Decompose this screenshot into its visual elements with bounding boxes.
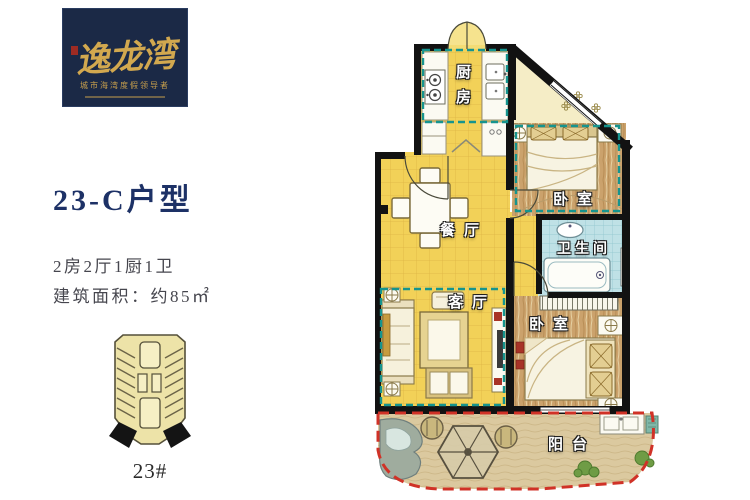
bed-bottom-icon xyxy=(525,338,615,400)
kitchen-counter-left xyxy=(422,52,448,120)
kitchen-counter-right xyxy=(482,52,508,120)
fridge-icon xyxy=(422,122,446,154)
coffee-table-icon xyxy=(420,312,468,368)
throw-blanket xyxy=(383,314,390,356)
room-label-kitchen: 厨房 xyxy=(452,64,473,114)
loveseat-icon xyxy=(426,368,472,398)
kitchen-cabinet-icon xyxy=(482,122,508,156)
room-label-living: 客厅 xyxy=(432,291,512,312)
balcony-sink-icon xyxy=(600,414,658,434)
bathroom-sink-icon xyxy=(557,223,583,238)
page: 逸龙湾 城市海湾度假领导者 23-C户型 2房2厅1厨1卫 建筑面积：约85㎡ … xyxy=(0,0,750,500)
room-label-bedroom-bottom: 卧室 xyxy=(513,313,593,334)
room-label-balcony: 阳台 xyxy=(532,433,612,454)
bathtub-icon xyxy=(544,258,610,292)
room-label-dining: 餐厅 xyxy=(424,219,504,240)
balcony-area xyxy=(378,413,658,489)
room-label-bedroom-top: 卧室 xyxy=(537,188,617,209)
sofa-icon xyxy=(382,300,414,384)
wardrobe-icon xyxy=(540,296,618,310)
room-label-bathroom: 卫生间 xyxy=(539,238,629,258)
floorplan xyxy=(0,0,750,500)
tv-icon xyxy=(497,330,503,368)
